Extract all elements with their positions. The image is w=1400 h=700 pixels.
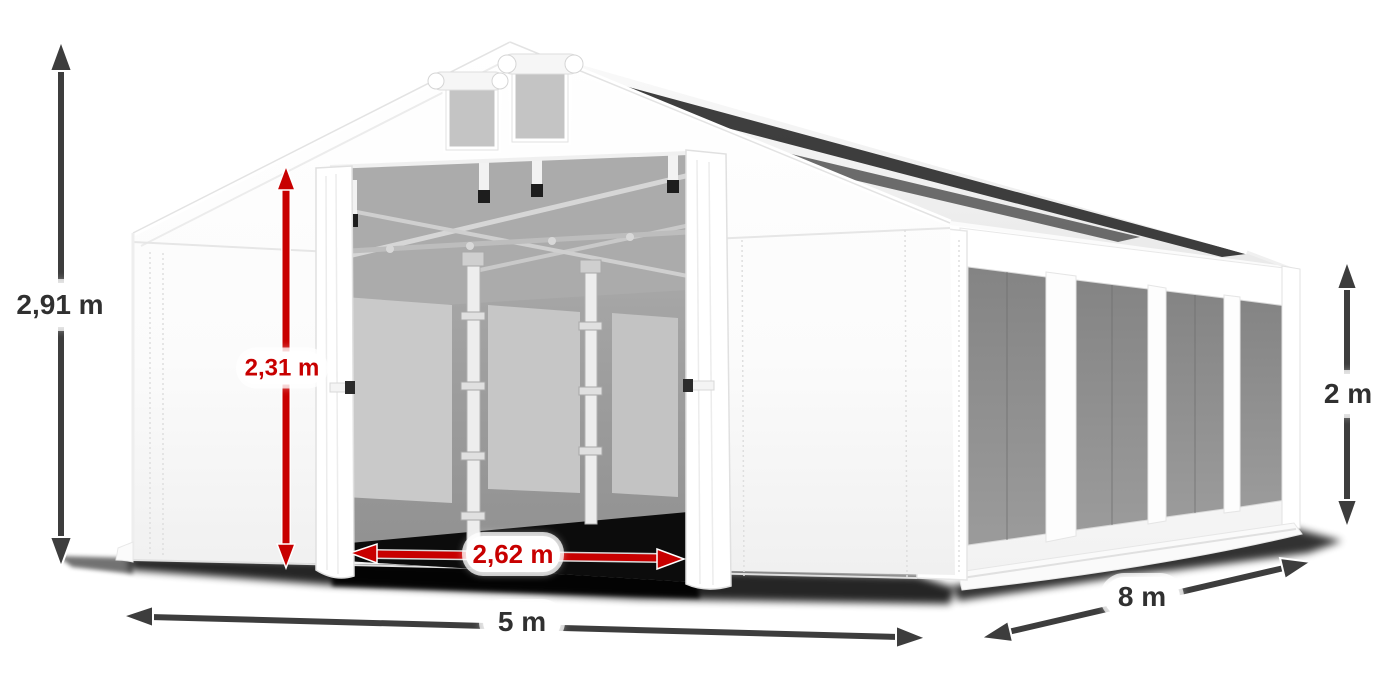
interior-wall-windows — [345, 297, 678, 503]
total-height-label: 2,91 m — [12, 283, 108, 327]
door-opening-interior — [328, 150, 690, 584]
door-flap-right — [686, 150, 731, 589]
gable-vent-left — [446, 86, 498, 150]
door-width-label: 2,62 m — [466, 536, 560, 572]
side-length-label: 8 m — [1104, 577, 1180, 617]
door-tie-buckle-left — [345, 381, 355, 394]
door-height-label: 2,31 m — [240, 352, 324, 385]
tent-side-wall — [958, 228, 1302, 590]
front-width-label: 5 m — [483, 603, 561, 641]
gable-vent-right — [512, 70, 568, 142]
tent-illustration — [0, 0, 1400, 700]
side-height-label: 2 m — [1310, 374, 1386, 414]
tent-dimension-diagram: 2,91 m 2,31 m 2,62 m 5 m 8 m 2 m — [0, 0, 1400, 700]
door-tie-buckle-right — [683, 379, 693, 392]
